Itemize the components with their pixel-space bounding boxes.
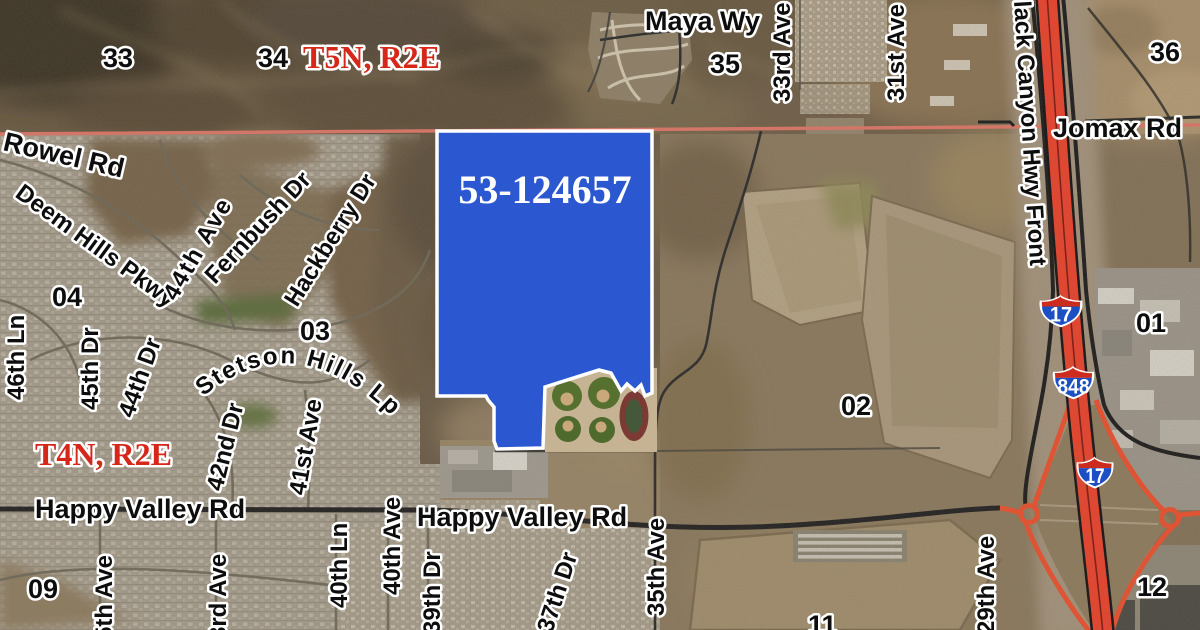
- svg-text:3rd Ave: 3rd Ave: [205, 554, 232, 630]
- svg-text:5th Ave: 5th Ave: [91, 555, 118, 630]
- svg-text:848: 848: [1057, 376, 1089, 399]
- svg-text:T4N, R2E: T4N, R2E: [35, 436, 172, 472]
- svg-text:33rd Ave: 33rd Ave: [769, 2, 796, 102]
- svg-text:04: 04: [52, 282, 82, 312]
- svg-text:33: 33: [103, 43, 133, 73]
- svg-text:03: 03: [300, 316, 330, 346]
- svg-text:35: 35: [710, 49, 740, 79]
- svg-text:Happy Valley Rd: Happy Valley Rd: [35, 494, 245, 524]
- svg-text:45th Dr: 45th Dr: [77, 327, 104, 410]
- svg-text:T5N, R2E: T5N, R2E: [303, 39, 440, 75]
- svg-text:39th Dr: 39th Dr: [419, 551, 446, 630]
- svg-text:11: 11: [808, 610, 837, 630]
- svg-text:01: 01: [1136, 308, 1166, 338]
- svg-text:31st Ave: 31st Ave: [883, 4, 910, 101]
- svg-text:12: 12: [1137, 572, 1167, 602]
- svg-text:46th Ln: 46th Ln: [3, 315, 30, 400]
- svg-text:09: 09: [28, 574, 58, 604]
- svg-text:29th Ave: 29th Ave: [973, 536, 1000, 630]
- svg-text:35th Ave: 35th Ave: [643, 518, 670, 616]
- svg-text:Jomax Rd: Jomax Rd: [1053, 113, 1182, 143]
- svg-text:53-124657: 53-124657: [458, 167, 631, 212]
- svg-text:Maya Wy: Maya Wy: [645, 6, 760, 36]
- svg-text:34: 34: [258, 43, 288, 73]
- svg-text:17: 17: [1085, 465, 1104, 488]
- svg-text:40th Ln: 40th Ln: [326, 523, 353, 608]
- svg-text:Happy Valley Rd: Happy Valley Rd: [417, 502, 627, 532]
- svg-text:02: 02: [841, 391, 871, 421]
- svg-text:40th Ave: 40th Ave: [379, 497, 406, 595]
- svg-text:17: 17: [1050, 303, 1072, 327]
- svg-text:36: 36: [1150, 37, 1180, 67]
